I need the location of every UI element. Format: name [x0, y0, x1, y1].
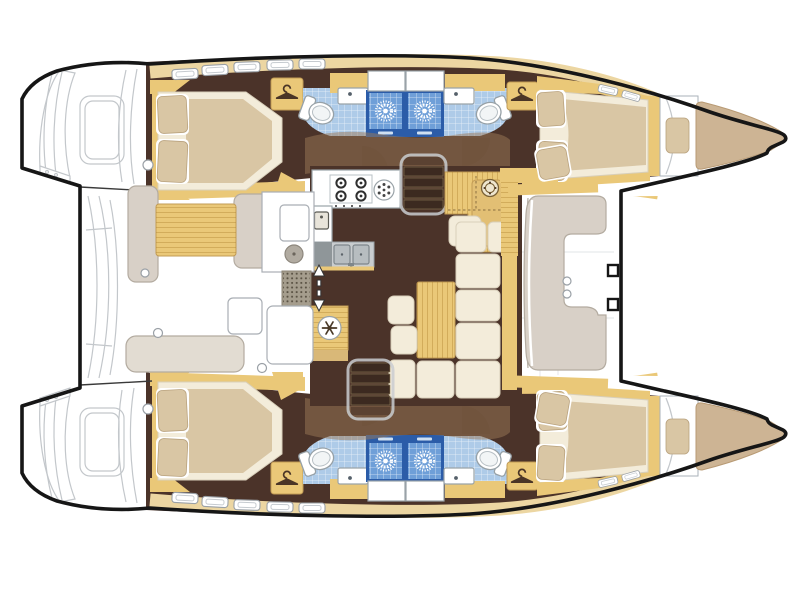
stove-icon: [330, 175, 372, 207]
stool: [391, 326, 417, 354]
cockpit-table: [156, 204, 236, 256]
door-panel: [228, 298, 262, 334]
catamaran-floorplan: [0, 0, 800, 600]
mast-step: [608, 265, 618, 276]
cockpit-bench: [126, 336, 244, 372]
round-burner-icon: [374, 180, 394, 200]
compass-icon: [482, 180, 499, 197]
stairs-starboard: [348, 360, 393, 419]
door-panel: [267, 306, 313, 364]
wet-bar: [262, 192, 314, 272]
stairs-port: [401, 155, 446, 214]
cockpit-cushion: [128, 186, 158, 282]
stool: [388, 296, 414, 324]
fridge: [311, 306, 348, 361]
double-sink-icon: [312, 242, 374, 270]
coffee-machine-icon: [315, 212, 329, 229]
mast-step: [608, 299, 618, 310]
floorplan-canvas: [0, 0, 800, 600]
deck-grate: [282, 271, 311, 306]
